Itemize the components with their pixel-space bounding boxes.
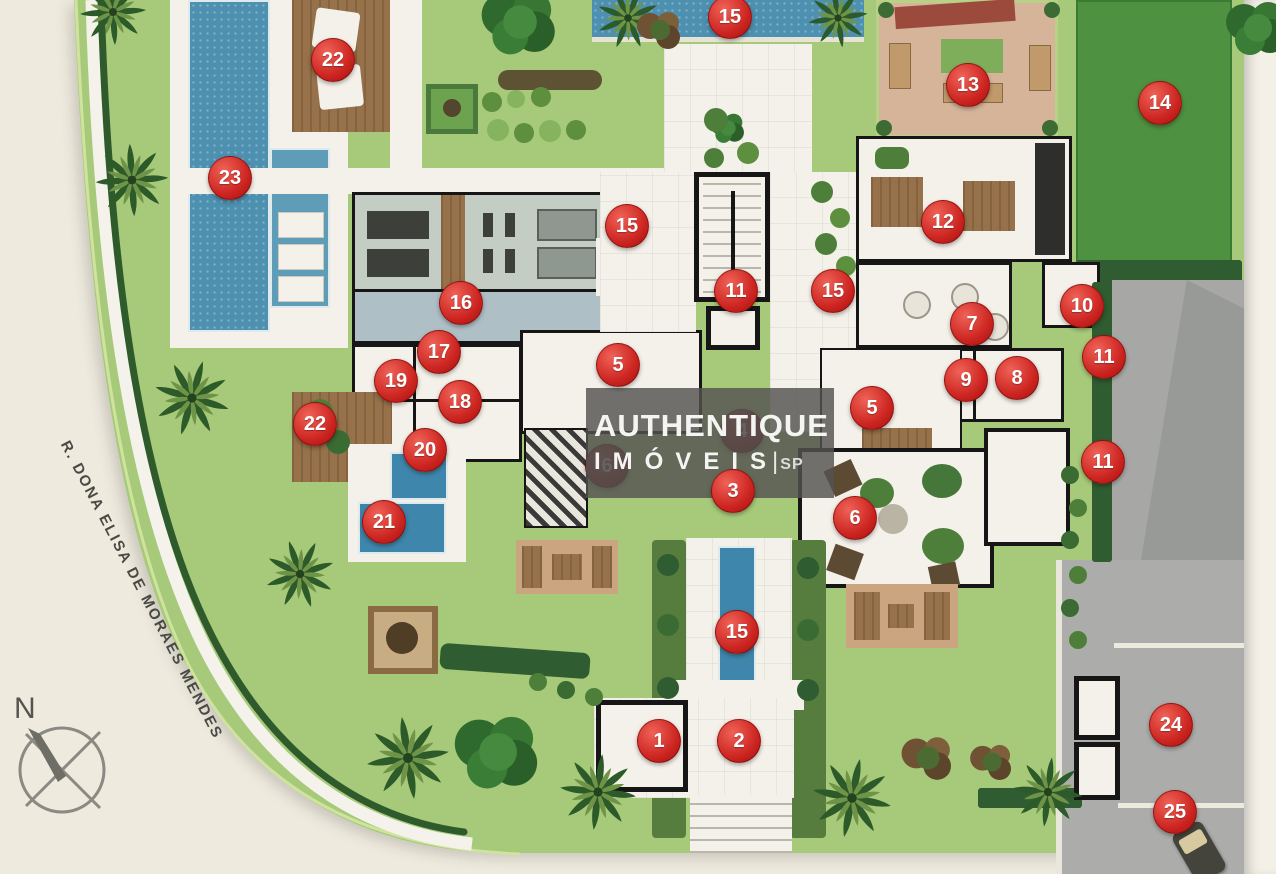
gym-mat (537, 247, 597, 279)
plan-marker-15[interactable]: 15 (811, 269, 855, 313)
plan-marker-2[interactable]: 2 (717, 719, 761, 763)
plan-marker-15[interactable]: 15 (715, 610, 759, 654)
watermark-brand: AUTHENTIQUE (594, 410, 826, 443)
plant (922, 464, 962, 498)
plan-marker-15[interactable]: 15 (605, 204, 649, 248)
plan-marker-16[interactable]: 16 (439, 281, 483, 325)
mulch-bed (498, 70, 602, 90)
plan-marker-11[interactable]: 11 (714, 269, 758, 313)
wicker-seat (889, 43, 911, 89)
bench (862, 428, 932, 448)
massage-bed (367, 249, 429, 277)
sofa-patio (516, 540, 618, 594)
drive-gatehouse (1074, 742, 1120, 800)
table (963, 181, 1015, 231)
driveway-upper (1112, 280, 1244, 566)
plan-marker-18[interactable]: 18 (438, 380, 482, 424)
plan-marker-8[interactable]: 8 (995, 356, 1039, 400)
plan-marker-3[interactable]: 3 (711, 469, 755, 513)
drive-gatehouse (1074, 676, 1120, 740)
plan-marker-21[interactable]: 21 (362, 500, 406, 544)
kitchen-counter (1035, 143, 1065, 255)
gym-equipment (483, 249, 493, 273)
watermark-divider: | (772, 448, 778, 476)
plan-marker-17[interactable]: 17 (417, 330, 461, 374)
plan-marker-11[interactable]: 11 (1081, 440, 1125, 484)
loungers (278, 212, 322, 304)
entry-steps (690, 795, 792, 853)
gym-mat (537, 209, 597, 241)
plan-marker-12[interactable]: 12 (921, 200, 965, 244)
plan-marker-25[interactable]: 25 (1153, 790, 1197, 834)
gym (352, 192, 610, 292)
plan-marker-11[interactable]: 11 (1082, 335, 1126, 379)
watermark: AUTHENTIQUE IMÓVEIS | SP (586, 388, 834, 498)
gym-equipment (505, 213, 515, 237)
side-wing (984, 428, 1070, 546)
plan-marker-7[interactable]: 7 (950, 302, 994, 346)
plan-marker-23[interactable]: 23 (208, 156, 252, 200)
rattan-chair (826, 544, 864, 581)
plan-marker-13[interactable]: 13 (946, 63, 990, 107)
lane-line (1114, 643, 1244, 648)
compass-north-label: N (14, 692, 36, 726)
ramp (524, 428, 588, 528)
lounger (924, 592, 950, 640)
gym-equipment (483, 213, 493, 237)
wood-strip (441, 195, 465, 289)
page-margin (1244, 0, 1276, 874)
tree-planter (368, 606, 438, 674)
plaza (664, 44, 812, 174)
table (888, 604, 914, 628)
plan-marker-10[interactable]: 10 (1060, 284, 1104, 328)
watermark-region: SP (780, 456, 803, 474)
plant (922, 528, 964, 564)
table (871, 177, 923, 227)
hedge-planter (426, 84, 478, 134)
massage-bed (367, 211, 429, 239)
plan-marker-19[interactable]: 19 (374, 359, 418, 403)
patio-deck (846, 584, 958, 648)
outdoor-sofa (894, 0, 1015, 29)
corridor (600, 172, 696, 332)
wicker-seat (1029, 45, 1051, 91)
plant (878, 504, 908, 534)
site-plan: 46 AUTHENTIQUE IMÓVEIS | SP 152213142312… (0, 0, 1276, 874)
plan-marker-24[interactable]: 24 (1149, 703, 1193, 747)
plan-marker-6[interactable]: 6 (833, 496, 877, 540)
compass: N (6, 690, 126, 830)
plan-marker-5[interactable]: 5 (596, 343, 640, 387)
round-table (903, 291, 931, 319)
gourmet-room (856, 136, 1072, 262)
plan-marker-9[interactable]: 9 (944, 358, 988, 402)
plan-marker-1[interactable]: 1 (637, 719, 681, 763)
path (390, 0, 422, 172)
plant (875, 147, 909, 169)
plan-marker-5[interactable]: 5 (850, 386, 894, 430)
sports-lawn (1076, 0, 1232, 262)
plan-marker-20[interactable]: 20 (403, 428, 447, 472)
hedge-row (978, 788, 1082, 808)
hedge-strip (1092, 282, 1112, 562)
lounger (854, 592, 880, 640)
plan-marker-22[interactable]: 22 (311, 38, 355, 82)
plan-marker-22[interactable]: 22 (293, 402, 337, 446)
watermark-imoveis: IMÓVEIS (594, 448, 778, 476)
gym-equipment (505, 249, 515, 273)
plan-marker-14[interactable]: 14 (1138, 81, 1182, 125)
